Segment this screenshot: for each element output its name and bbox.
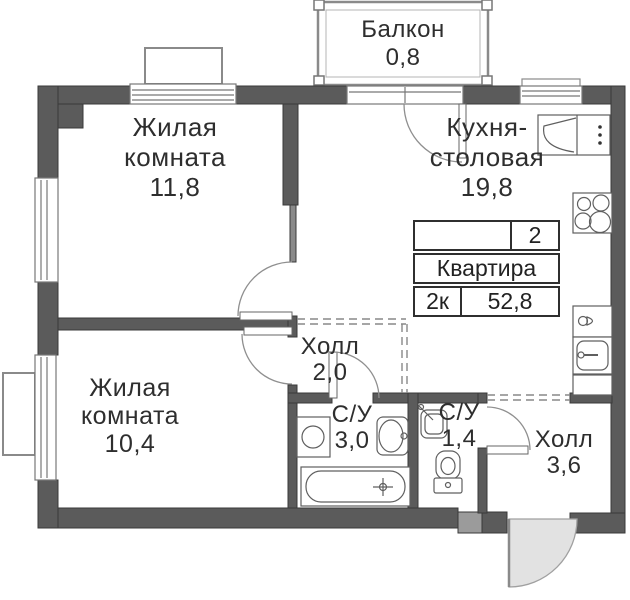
bathtub-icon <box>301 467 410 506</box>
window-top-right <box>520 86 582 104</box>
title-block-row-number: 2 <box>413 220 560 251</box>
room-name: С/У <box>430 400 488 426</box>
label-balcony: Балкон 0,8 <box>330 16 476 72</box>
room-name: комната <box>46 402 214 430</box>
window-basket-top <box>145 48 222 84</box>
room-area: 19,8 <box>404 172 570 202</box>
label-hall-2: Холл 3,6 <box>508 427 620 479</box>
kitchen-sink-icon <box>573 337 612 374</box>
title-block-empty-cell <box>415 222 510 249</box>
label-bathroom-2: С/У 1,4 <box>430 400 488 452</box>
title-block-row-label: Квартира <box>413 253 560 284</box>
room-area: 1,4 <box>430 426 488 452</box>
apartment-floor-plan: Жилая комната 11,8 Кухня- столовая 19,8 … <box>0 0 630 600</box>
title-block-row-area: 2к 52,8 <box>413 286 560 317</box>
room-name: Жилая <box>90 112 260 142</box>
label-living-room-2: Жилая комната 10,4 <box>46 374 214 458</box>
room-name: С/У <box>320 402 384 428</box>
window-top-left <box>130 84 236 104</box>
toilet-icon <box>434 451 462 493</box>
apartment-title-block: 2 Квартира 2к 52,8 <box>413 220 560 317</box>
room-name: Холл <box>278 334 382 360</box>
room-name: комната <box>90 142 260 172</box>
total-area: 52,8 <box>462 288 558 315</box>
flat-label: Квартира <box>415 255 558 282</box>
room-area: 3,6 <box>508 453 620 479</box>
label-hall-1: Холл 2,0 <box>278 334 382 386</box>
room-area: 11,8 <box>90 172 260 202</box>
room-name: столовая <box>404 142 570 172</box>
partition-wall <box>290 205 296 262</box>
room-area: 3,0 <box>320 428 384 454</box>
window-basket-left <box>3 373 35 455</box>
room-area: 2,0 <box>278 360 382 386</box>
flat-number: 2 <box>510 222 558 249</box>
label-bathroom-1: С/У 3,0 <box>320 402 384 454</box>
room-name: Кухня- <box>404 112 570 142</box>
label-living-room-1: Жилая комната 11,8 <box>90 112 260 202</box>
stove-icon <box>573 193 612 233</box>
rooms-code: 2к <box>415 288 462 315</box>
label-kitchen: Кухня- столовая 19,8 <box>404 112 570 202</box>
room-area: 10,4 <box>46 430 214 458</box>
room-area: 0,8 <box>330 44 476 72</box>
room-name: Балкон <box>330 16 476 44</box>
room-name: Жилая <box>46 374 214 402</box>
room-name: Холл <box>508 427 620 453</box>
